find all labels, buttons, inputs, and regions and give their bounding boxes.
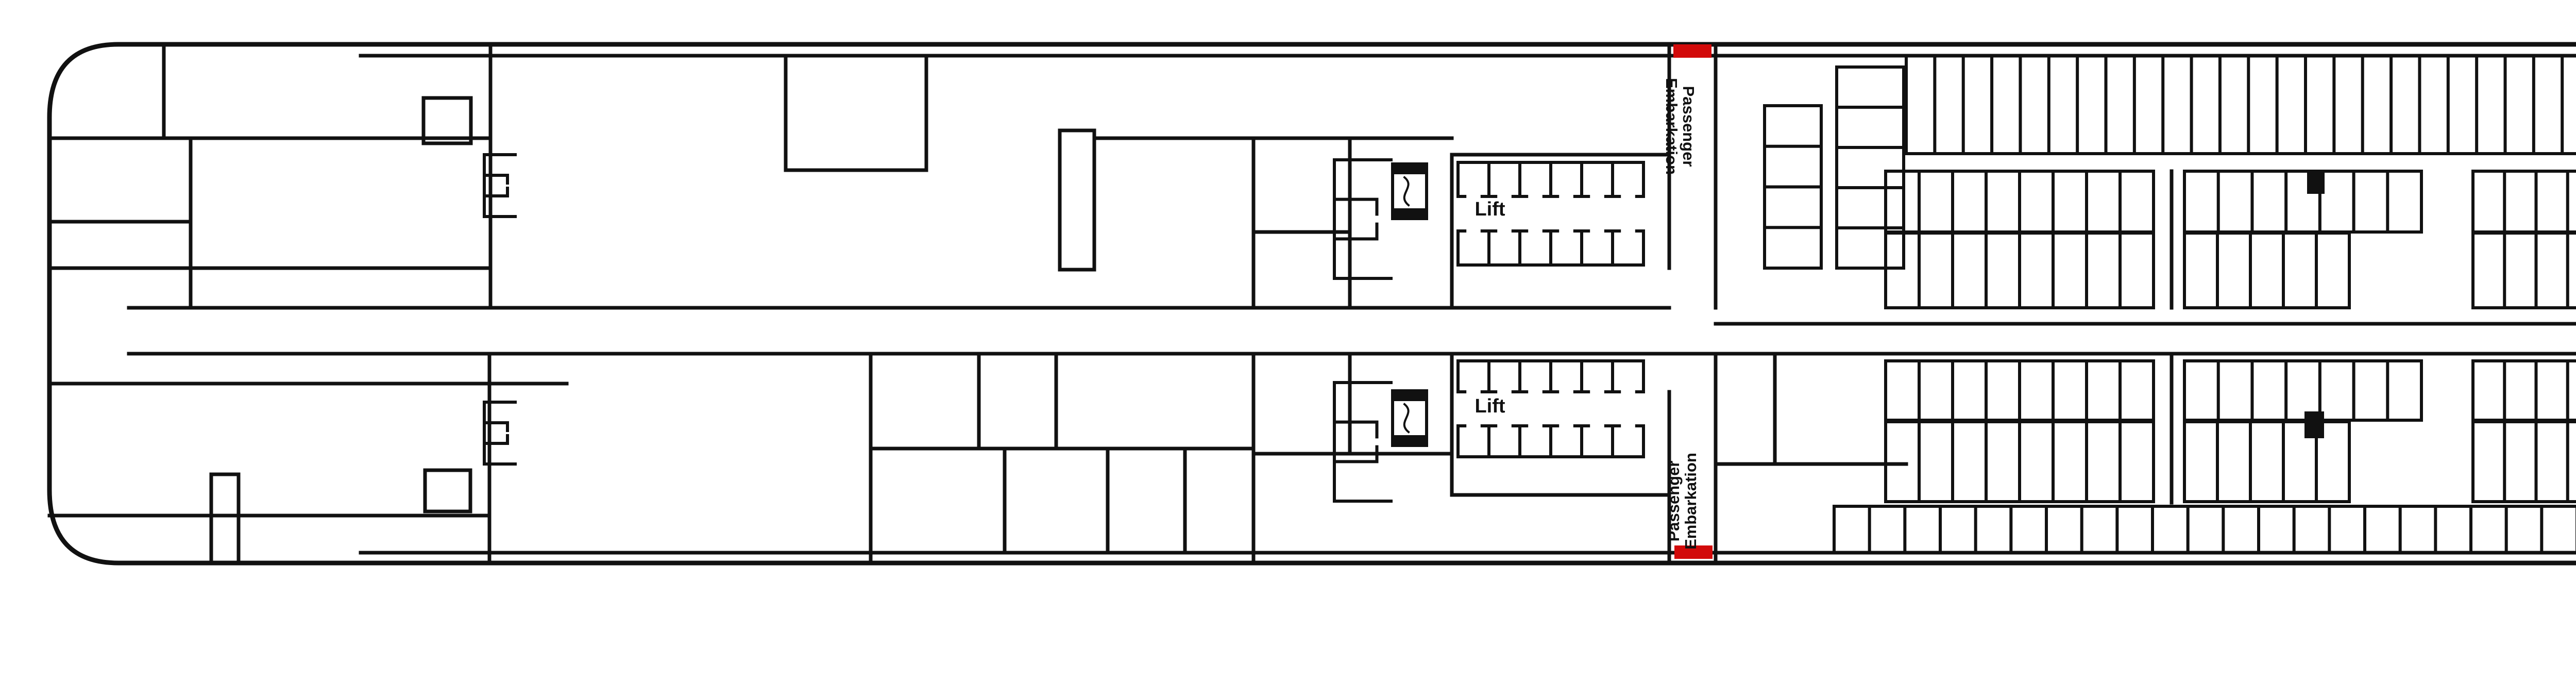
passenger-embarkation-label: PassengerEmbarkation [1663,78,1698,175]
embarkation-marker [1673,44,1711,58]
passenger-embarkation-line1: Passenger [1680,86,1698,167]
escalator-cap-icon [1393,435,1427,445]
passenger-embarkation-label: PassengerEmbarkation [1665,453,1700,550]
passenger-embarkation-line1: Passenger [1665,461,1683,542]
escalator-cap-icon [1393,164,1427,174]
lift-label: Lift [1475,198,1505,220]
passenger-embarkation-line2: Embarkation [1663,78,1681,175]
passenger-embarkation-line2: Embarkation [1682,453,1700,550]
service-core [2307,170,2325,194]
escalator-cap-icon [1393,208,1427,219]
deck-plan: LiftLiftLiftLiftPassengerEmbarkationPass… [0,0,2576,679]
service-core [2304,411,2324,438]
escalator-cap-icon [1393,391,1427,401]
deck-plan-svg: LiftLiftLiftLiftPassengerEmbarkationPass… [0,0,2576,679]
ship-hull [49,44,2576,563]
lift-label: Lift [1475,395,1505,417]
